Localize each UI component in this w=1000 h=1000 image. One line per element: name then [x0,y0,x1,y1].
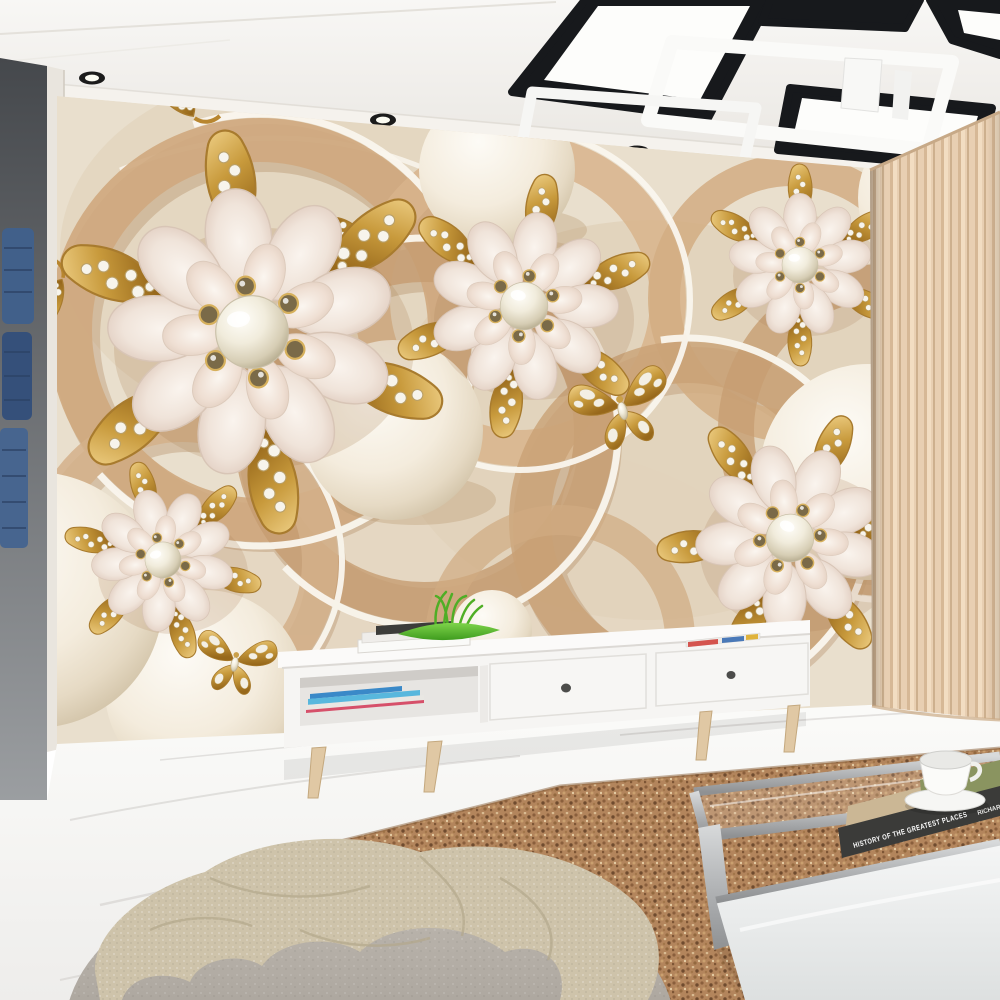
left-wall [0,58,64,800]
drawer-knob[interactable] [561,684,571,693]
living-room-scene: HISTORY OF THE GREATEST PLACES RICHARD H… [0,0,1000,1000]
spotlight-icon [79,72,105,85]
living-room-photo: HISTORY OF THE GREATEST PLACES RICHARD H… [0,0,1000,1000]
drawer-knob[interactable] [727,671,736,679]
curtain [870,112,1000,720]
